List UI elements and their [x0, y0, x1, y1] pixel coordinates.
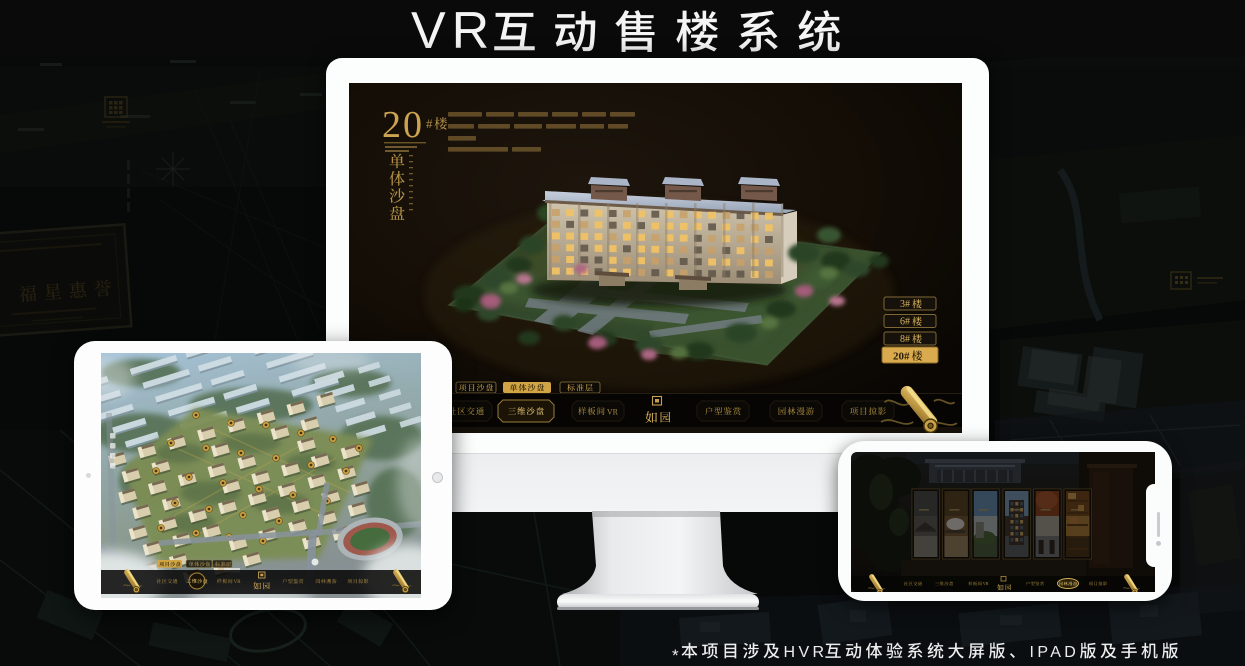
- svg-text:3#: 3#: [900, 299, 910, 310]
- svg-text:6#: 6#: [900, 317, 910, 328]
- svg-text:VR: VR: [607, 407, 619, 416]
- svg-text:20#: 20#: [893, 351, 910, 363]
- svg-text:HVR: HVR: [784, 644, 828, 661]
- svg-text:VR: VR: [983, 581, 989, 586]
- svg-text:IPAD: IPAD: [1030, 644, 1080, 661]
- svg-text:8#: 8#: [900, 334, 910, 345]
- svg-text:#: #: [426, 116, 433, 131]
- svg-text:VR: VR: [234, 580, 242, 585]
- svg-text:20: 20: [382, 104, 424, 146]
- svg-text:*: *: [672, 646, 679, 665]
- svg-text:VR: VR: [411, 2, 495, 60]
